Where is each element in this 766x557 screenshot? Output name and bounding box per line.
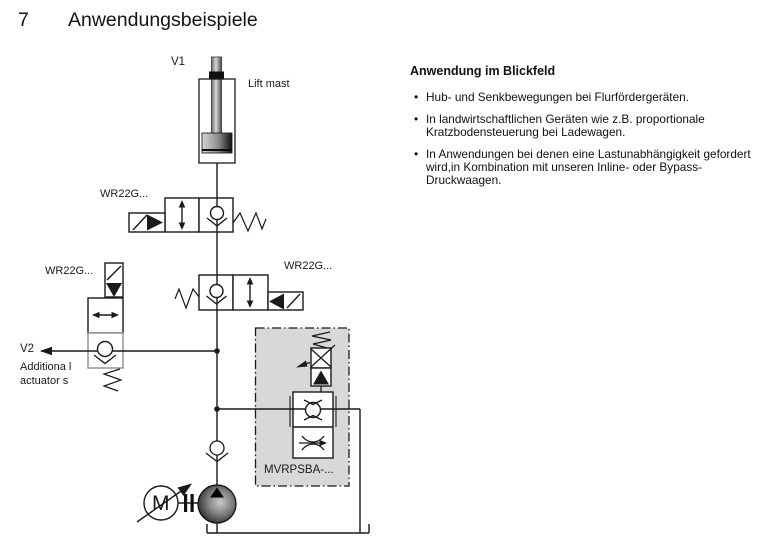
piston-rod <box>212 57 222 135</box>
coupling-bar <box>184 494 187 512</box>
junction-cartridge <box>214 406 220 412</box>
valve-mid-label: WR22G... <box>284 260 332 272</box>
list-item: • Hub- und Senkbewegungen bei Flurförder… <box>410 91 762 104</box>
cylinder-label: V1 <box>171 56 185 68</box>
cartridge-label: MVRPSBA-... <box>264 464 334 476</box>
junction-v2 <box>214 348 220 354</box>
additional-actuators-label-1: Additiona l <box>20 361 71 373</box>
bullet-icon: • <box>414 148 418 161</box>
bullet-text: Hub- und Senkbewegungen bei Flurförderge… <box>426 90 689 104</box>
valve-top-label: WR22G... <box>100 188 148 200</box>
info-heading: Anwendung im Blickfeld <box>410 64 762 78</box>
list-item: • In Anwendungen bei denen eine Lastunab… <box>410 148 762 187</box>
coupling-bar <box>191 494 194 512</box>
bullet-text: In landwirtschaftlichen Geräten wie z.B.… <box>426 112 705 139</box>
valve-left-label: WR22G... <box>45 265 93 277</box>
variable-arrowhead <box>178 484 193 497</box>
info-bullet-list: • Hub- und Senkbewegungen bei Flurförder… <box>410 91 762 186</box>
rod-gland <box>209 72 224 80</box>
lift-mast-label: Lift mast <box>248 78 290 90</box>
info-block: Anwendung im Blickfeld • Hub- und Senkbe… <box>410 64 762 195</box>
bullet-icon: • <box>414 91 418 104</box>
list-item: • In landwirtschaftlichen Geräten wie z.… <box>410 113 762 139</box>
cylinder-v1 <box>199 57 235 163</box>
additional-actuators-label-2: actuator s <box>20 375 68 387</box>
bullet-icon: • <box>414 113 418 126</box>
motor-letter: M <box>152 492 170 516</box>
v2-port-label: V2 <box>20 343 34 355</box>
bullet-text: In Anwendungen bei denen eine Lastunabhä… <box>426 147 751 187</box>
